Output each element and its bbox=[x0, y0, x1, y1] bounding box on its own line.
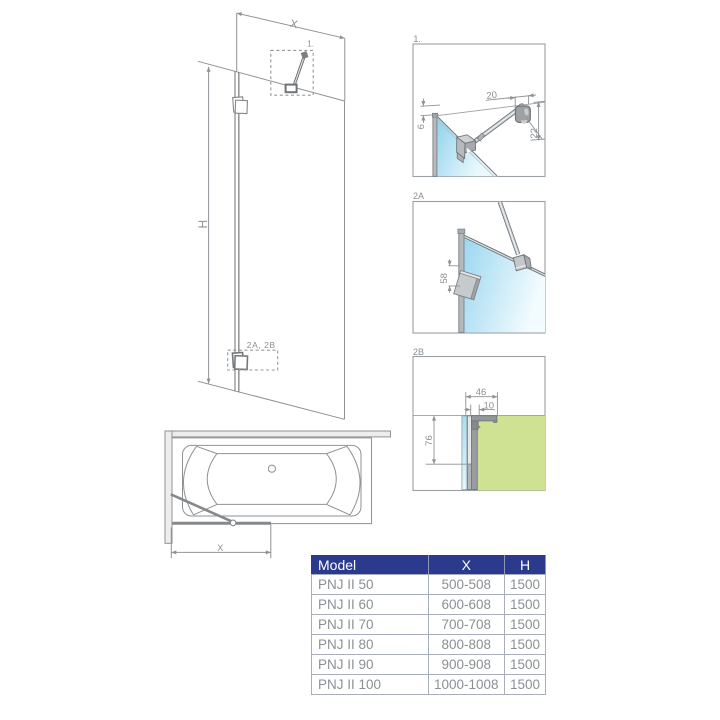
svg-text:76: 76 bbox=[424, 435, 435, 446]
svg-text:2A: 2A bbox=[413, 191, 424, 201]
svg-text:46: 46 bbox=[476, 387, 487, 398]
svg-text:H: H bbox=[196, 220, 210, 229]
svg-text:X: X bbox=[217, 543, 223, 553]
svg-text:22: 22 bbox=[529, 128, 540, 139]
svg-text:X: X bbox=[289, 18, 299, 31]
svg-text:58: 58 bbox=[439, 273, 450, 284]
svg-text:10: 10 bbox=[484, 400, 495, 411]
svg-text:1.: 1. bbox=[413, 34, 421, 44]
svg-text:6: 6 bbox=[416, 124, 427, 129]
svg-text:20: 20 bbox=[486, 90, 498, 102]
svg-text:2B: 2B bbox=[413, 347, 424, 357]
svg-text:1.: 1. bbox=[307, 40, 314, 49]
svg-text:2A, 2B: 2A, 2B bbox=[247, 340, 276, 350]
